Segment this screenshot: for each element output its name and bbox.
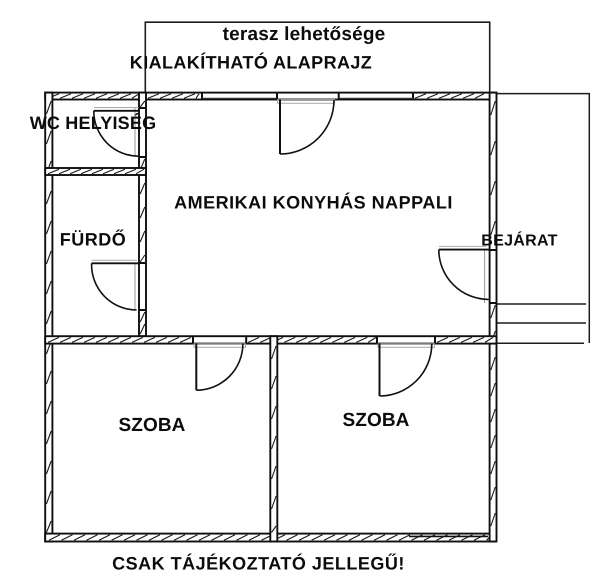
svg-text:terasz lehetősége: terasz lehetősége — [223, 24, 386, 45]
svg-text:SZOBA: SZOBA — [119, 415, 186, 436]
svg-text:CSAK TÁJÉKOZTATÓ JELLEGŰ!: CSAK TÁJÉKOZTATÓ JELLEGŰ! — [112, 554, 405, 574]
svg-text:AMERIKAI KONYHÁS NAPPALI: AMERIKAI KONYHÁS NAPPALI — [174, 193, 453, 213]
svg-text:SZOBA: SZOBA — [343, 410, 410, 431]
svg-text:KIALAKÍTHATÓ ALAPRAJZ: KIALAKÍTHATÓ ALAPRAJZ — [130, 53, 372, 73]
svg-text:FÜRDŐ: FÜRDŐ — [60, 230, 127, 250]
svg-text:WC HELYISÉG: WC HELYISÉG — [30, 113, 157, 133]
svg-text:BEJÁRAT: BEJÁRAT — [481, 231, 557, 250]
